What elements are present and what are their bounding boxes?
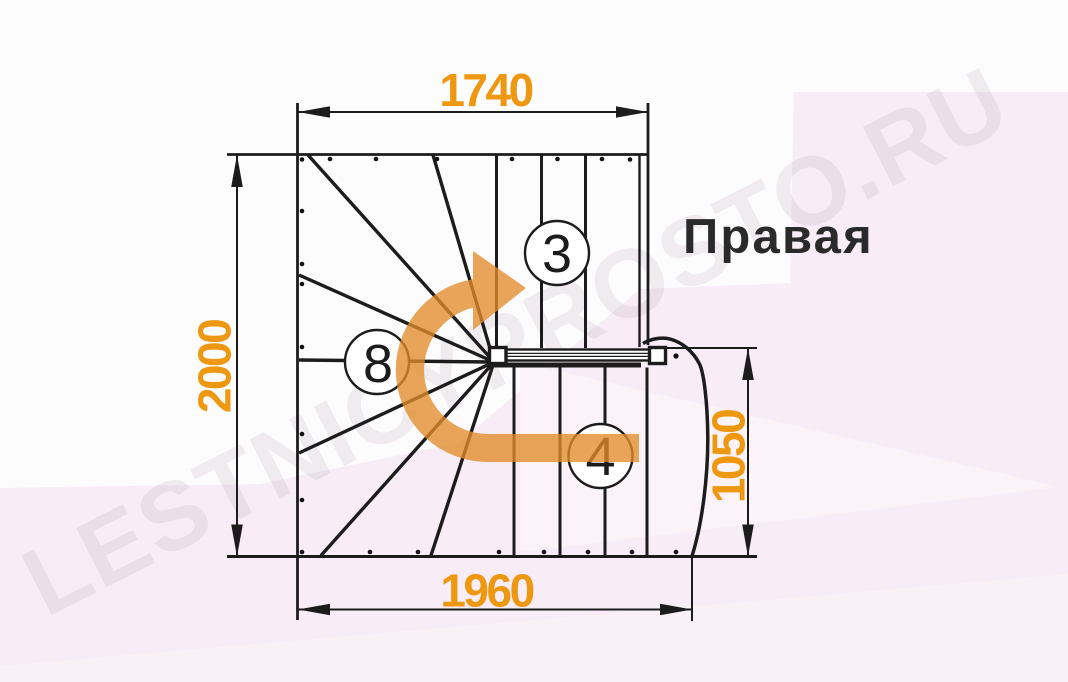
svg-text:1740: 1740: [439, 64, 532, 116]
svg-text:Правая: Правая: [683, 210, 874, 264]
svg-text:3: 3: [542, 224, 572, 284]
svg-text:1050: 1050: [703, 410, 755, 503]
svg-text:1960: 1960: [440, 565, 533, 617]
svg-text:2000: 2000: [189, 320, 241, 413]
svg-text:8: 8: [363, 334, 393, 394]
